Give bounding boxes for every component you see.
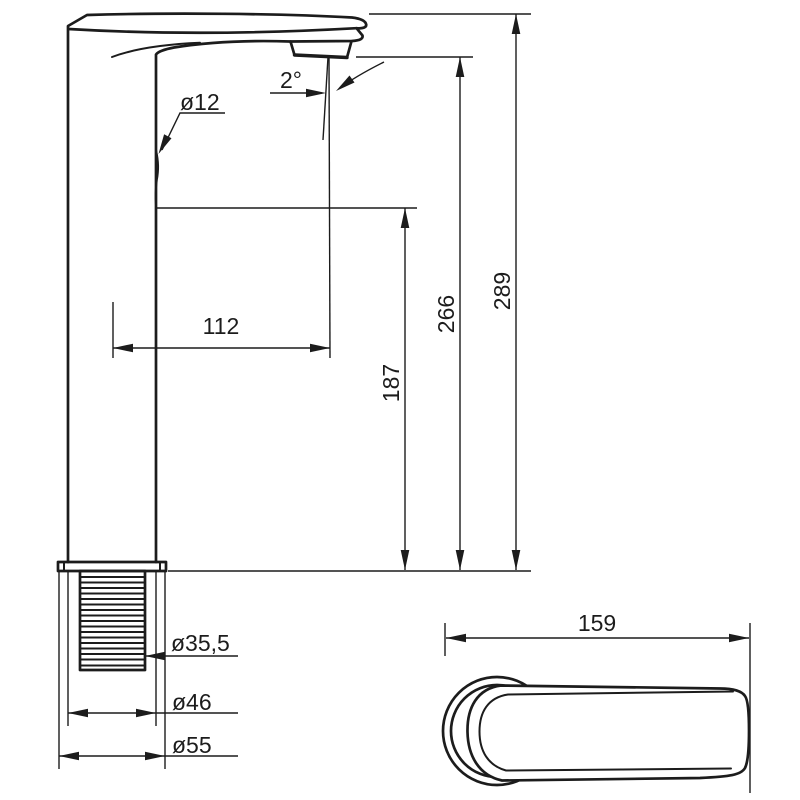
body-diameter-arrowhead-right	[136, 709, 156, 718]
drawing-canvas: ø12 2° 112 187 266	[0, 0, 800, 800]
spray-angle-arrowhead-right	[336, 76, 355, 92]
dimension-spout-reach: 112	[113, 302, 330, 358]
spout-reach-arrowhead-right	[310, 344, 330, 353]
base-diameter-label: ø55	[172, 732, 212, 758]
faucet-lever-underside	[69, 28, 357, 32]
faucet-dimension-drawing: ø12 2° 112 187 266	[0, 0, 800, 800]
handle-length-arrowhead-left	[446, 634, 466, 643]
dimension-spout-height: 266	[433, 57, 464, 570]
dimension-outlet-height: 187	[378, 208, 409, 570]
pipe-diameter-leader	[162, 113, 225, 150]
spout-height-label: 266	[433, 295, 459, 333]
handle-length-label: 159	[578, 610, 616, 636]
spray-stream-line	[323, 57, 328, 140]
spray-angle-arrowhead-left	[306, 89, 326, 98]
faucet-aerator-bottom-face	[295, 55, 348, 58]
faucet-base	[58, 562, 166, 670]
spout-reach-label: 112	[203, 313, 240, 339]
outlet-height-label: 187	[378, 364, 404, 402]
spout-height-arrowhead-top	[456, 57, 465, 77]
base-diameter-arrowhead-right	[145, 752, 165, 761]
dimension-total-height: 289	[489, 14, 520, 570]
body-diameter-arrowhead-left	[68, 709, 88, 718]
dimension-pipe-diameter: ø12	[159, 89, 226, 154]
total-height-arrowhead-top	[512, 14, 521, 34]
spout-reach-arrowhead-left	[113, 344, 133, 353]
outlet-height-arrowhead-top	[401, 208, 410, 228]
base-diameter-arrowhead-left	[59, 752, 79, 761]
thread-lines	[81, 577, 144, 660]
total-height-label: 289	[489, 272, 515, 310]
total-height-arrowhead-bottom	[512, 550, 521, 570]
handle-length-arrowhead-right	[729, 634, 749, 643]
pipe-diameter-label: ø12	[180, 89, 220, 115]
body-diameter-label: ø46	[172, 689, 212, 715]
pipe-diameter-arrowhead	[159, 134, 172, 154]
thread-diameter-arrowhead	[145, 652, 165, 661]
spray-angle-label: 2°	[280, 67, 302, 93]
dimension-thread-diameter: ø35,5	[145, 630, 238, 660]
handle-lever-outline	[467, 686, 749, 781]
top-view-handle	[443, 677, 749, 785]
thread-diameter-label: ø35,5	[171, 630, 230, 656]
outlet-height-arrowhead-bottom	[401, 550, 410, 570]
spout-height-arrowhead-bottom	[456, 550, 465, 570]
